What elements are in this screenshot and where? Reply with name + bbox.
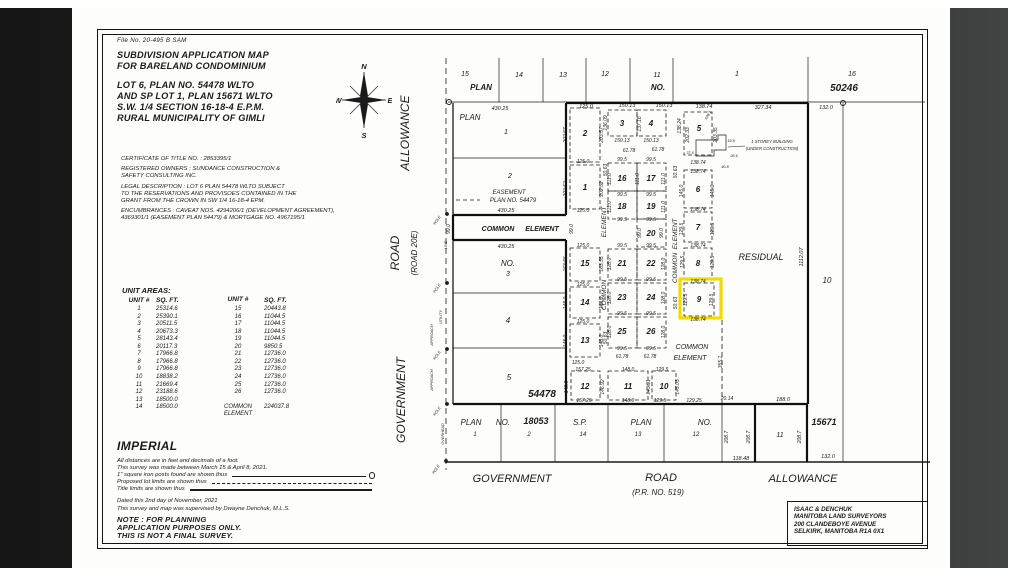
map-label: 18053	[523, 416, 548, 426]
map-label: 129.5	[683, 294, 689, 307]
map-label: 50.63	[603, 332, 609, 345]
map-label: S.P.	[573, 418, 587, 427]
map-label: 12	[601, 71, 609, 78]
map-label: 99.0	[569, 224, 575, 234]
map-label: 430.25	[498, 244, 516, 250]
map-label: 202.52	[599, 181, 605, 198]
map-label: 4	[506, 316, 511, 325]
map-label: 99.5	[617, 192, 627, 198]
map-label: 129.25	[686, 398, 702, 404]
map-label: 125.0	[577, 319, 590, 325]
map-label: 2	[526, 432, 531, 438]
map-label: 137.16	[637, 116, 643, 132]
map-label: GOVERNMENT	[473, 473, 553, 485]
map-label: PLAN NO. 54479	[490, 198, 537, 204]
pole-marker	[445, 281, 449, 285]
map-label: 145.03	[675, 379, 681, 395]
map-label: 9	[697, 295, 702, 304]
map-label: 18	[618, 202, 627, 211]
map-label: 99.5	[646, 346, 656, 352]
map-label: POLE	[433, 406, 442, 417]
map-label: ALLOWANCE	[768, 473, 839, 485]
map-label: 26.6	[729, 154, 738, 158]
map-label: PLAN	[631, 418, 652, 427]
map-label: 14	[581, 298, 590, 307]
map-label: 202.52	[563, 181, 569, 198]
map-label: COMMON	[482, 226, 516, 233]
map-label: 99.0	[637, 228, 643, 238]
map-label: 129.5	[656, 367, 669, 373]
map-label: 61.78	[644, 354, 657, 360]
map-label: GOVERNMENT	[394, 355, 408, 443]
map-label: 129.5	[679, 223, 685, 236]
map-label: 13	[559, 72, 567, 79]
map-label: 99.5	[617, 157, 627, 163]
map-label: 129.5	[709, 294, 715, 307]
map-label: 208.7	[797, 431, 803, 445]
map-label: ALLOWANCE	[398, 94, 412, 171]
pole-marker	[444, 459, 448, 463]
map-label: 125.0	[577, 208, 590, 214]
map-label: 3	[620, 119, 625, 128]
map-label: 146.92	[600, 379, 606, 395]
map-label: 21	[617, 259, 627, 268]
map-label: APPROACH	[430, 369, 434, 392]
map-label: PLAN	[461, 418, 482, 427]
map-label: 129.5	[680, 256, 686, 269]
map-label: 1	[735, 71, 739, 78]
map-label: 108.2	[704, 110, 713, 121]
map-label: 12	[581, 382, 590, 391]
map-label: UTILITY	[439, 309, 443, 324]
map-label: 99.5	[646, 243, 656, 249]
map-label: COMMON	[672, 253, 679, 284]
map-label: 138.74	[690, 243, 706, 249]
map-label: NO.	[501, 259, 515, 268]
map-label: 208.7	[724, 431, 730, 445]
map-label: 157.25	[576, 398, 592, 404]
map-label: 2	[582, 129, 588, 138]
map-label: 118.48	[733, 456, 750, 462]
map-label: 148.0	[622, 398, 635, 404]
map-label: (UNDER CONSTRUCTION)	[746, 146, 799, 151]
map-label: 202.67	[563, 127, 569, 144]
map-label: 129.5	[710, 223, 716, 236]
map-label: 138.74	[690, 317, 706, 323]
map-label: 22	[646, 259, 656, 268]
map-label: 20.14	[720, 396, 734, 402]
map-label: 3	[506, 271, 510, 278]
map-label: COMMON	[601, 280, 608, 311]
map-label: 1 STOREY BUILDING	[751, 139, 793, 144]
map-label: 11	[624, 382, 633, 391]
map-label: APPROACH	[430, 324, 434, 347]
map-label: 50246	[830, 83, 858, 94]
map-label: 54478	[528, 389, 556, 400]
map-label: 5	[697, 124, 702, 133]
map-label: 26	[646, 327, 656, 336]
map-label: 99.5	[646, 157, 656, 163]
map-label: NO.	[496, 418, 510, 427]
map-label: POLE	[432, 464, 441, 475]
map-label: 7	[696, 223, 701, 232]
map-label: 99.5	[646, 311, 656, 317]
pole-marker	[445, 402, 449, 406]
map-label: 138.74	[696, 104, 713, 110]
map-label: 50.63	[673, 166, 679, 179]
map-label: 16	[618, 174, 627, 183]
map-label: 150.13	[656, 103, 674, 109]
map-label: 138.74	[690, 160, 706, 166]
map-label: 163.55	[599, 256, 605, 272]
map-label: 24	[646, 293, 656, 302]
map-label: 128.0	[661, 292, 667, 305]
map-label: 8	[696, 259, 701, 268]
map-label: RESIDUAL	[738, 252, 783, 262]
map-label: 148.0	[564, 381, 570, 394]
map-label: 1112.07	[799, 247, 805, 267]
map-label: 10	[660, 382, 669, 391]
map-label: 15	[581, 259, 590, 268]
map-label: OVERHEAD	[441, 423, 445, 445]
map-label: 150.13	[619, 103, 637, 109]
map-label: 4	[648, 119, 654, 128]
map-label: 19	[647, 202, 656, 211]
map-label: 138.74	[690, 279, 706, 285]
map-label: 125.0	[572, 360, 585, 366]
map-label: 99.5	[646, 277, 656, 283]
map-label: 13	[635, 432, 642, 438]
map-label: ELEMENT	[601, 206, 608, 238]
map-label: 99.5	[617, 277, 627, 283]
map-label: ROAD	[388, 235, 402, 270]
map-label: 20	[646, 229, 656, 238]
map-label: 99.5	[646, 192, 656, 198]
map-label: LINE	[444, 240, 448, 249]
map-label: 99.5	[617, 217, 627, 223]
map-label: 99.5	[617, 311, 627, 317]
map-label: 138.24	[677, 118, 683, 134]
map-label: 128.0	[661, 326, 667, 339]
map-label: 99.0	[659, 228, 665, 238]
map-label: 150.13	[614, 138, 630, 144]
map-label: 1	[583, 183, 588, 192]
map-label: 15	[461, 71, 469, 78]
map-label: 132.0	[819, 105, 834, 111]
map-label: 16	[848, 71, 856, 78]
map-label: PLAN	[460, 113, 481, 122]
map-label: 61.78	[623, 148, 636, 154]
map-label: 111.0	[661, 173, 667, 185]
map-label: ELEMENT	[673, 355, 707, 362]
map-label: EASEMENT	[492, 190, 526, 196]
map-label: ELEMENT	[672, 218, 679, 250]
map-label: 99.0	[446, 224, 452, 234]
scanned-survey-document: File No. 20-495 B SAM SUBDIVISION APPLIC…	[0, 0, 1024, 576]
map-label: 148.0	[563, 335, 569, 348]
map-label: 150.13	[643, 138, 659, 144]
map-label: 99.5	[617, 243, 627, 249]
map-label: 163.55	[563, 256, 569, 272]
map-label: NO.	[651, 83, 665, 92]
map-label: 138.74	[690, 169, 706, 175]
map-label: 145.0	[710, 185, 716, 198]
map-label: 15671	[811, 417, 836, 427]
building-outline	[696, 135, 726, 156]
map-label: 327.34	[755, 105, 772, 111]
map-label: 23	[617, 293, 627, 302]
map-label: 148.0	[563, 297, 569, 310]
map-label: 148.0	[622, 367, 635, 373]
map-label: 128.0	[661, 258, 667, 271]
map-label: 1	[473, 432, 476, 438]
map-label: 145.0	[679, 185, 685, 198]
map-label: 10	[823, 276, 832, 285]
map-label: 111.0	[635, 173, 641, 185]
map-label: POLE	[433, 283, 442, 294]
map-label: 203.35	[713, 127, 719, 144]
map-label: 25	[617, 327, 627, 336]
map-label: 430.25	[498, 208, 516, 214]
map-label: 208.7	[746, 431, 752, 445]
map-label: 136.09	[603, 115, 609, 131]
map-label: COMMON	[676, 344, 710, 351]
map-label: 128.0	[607, 258, 613, 271]
map-label: 125.0	[577, 159, 590, 165]
pole-marker	[445, 347, 449, 351]
map-label: 17	[647, 174, 656, 183]
map-label: 430.25	[492, 106, 510, 112]
map-label: 125.0	[577, 243, 590, 249]
map-label: (ROAD 20E)	[410, 230, 419, 275]
survey-map-drawing: 15141312111PLANNO.1650246430.25125.0150.…	[0, 0, 1024, 576]
map-label: 125.0	[577, 282, 590, 288]
map-label: ELEMENT	[525, 226, 559, 233]
map-label: 6	[696, 185, 701, 194]
map-label: 13	[581, 336, 590, 345]
map-label: 12	[693, 432, 700, 438]
map-label: 202.33	[685, 127, 691, 144]
pole-marker	[445, 212, 449, 216]
map-label: 99.5	[646, 217, 656, 223]
map-label: NO.	[698, 418, 712, 427]
map-label: 129.5	[710, 256, 716, 269]
map-label: POLE	[433, 350, 442, 361]
map-label: 99.5	[617, 346, 627, 352]
map-label: 19.8	[727, 139, 735, 143]
map-label: 5	[507, 373, 512, 382]
map-label: 125.0	[579, 104, 594, 110]
map-label: 40.8	[721, 165, 729, 169]
map-label: 50.63	[673, 297, 679, 310]
map-label: (P.R. NO. 519)	[632, 488, 684, 497]
map-label: 1	[504, 129, 508, 136]
map-label: 11	[653, 72, 660, 79]
map-label: 129.5	[654, 398, 667, 404]
map-line	[728, 146, 745, 147]
map-label: 132.0	[821, 454, 836, 460]
map-label: 61.78	[652, 147, 665, 153]
map-label: 11	[776, 432, 783, 439]
map-label: 111.0	[661, 201, 667, 213]
map-label: 14	[580, 432, 587, 438]
map-label: 2	[507, 173, 512, 180]
map-label: ROAD	[645, 472, 677, 484]
map-label: 14	[515, 72, 523, 79]
map-label: 138.74	[690, 207, 706, 213]
map-label: 188.0	[776, 397, 791, 403]
map-label: PLAN	[470, 83, 492, 92]
map-label: 111.0	[607, 173, 613, 185]
map-label: 145.91	[646, 379, 652, 395]
map-label: 157.25	[575, 367, 591, 373]
map-label: POLE	[433, 215, 442, 226]
map-label: 355.1	[718, 356, 724, 369]
map-label: 37.6	[686, 151, 694, 155]
map-label: 61.78	[616, 354, 629, 360]
